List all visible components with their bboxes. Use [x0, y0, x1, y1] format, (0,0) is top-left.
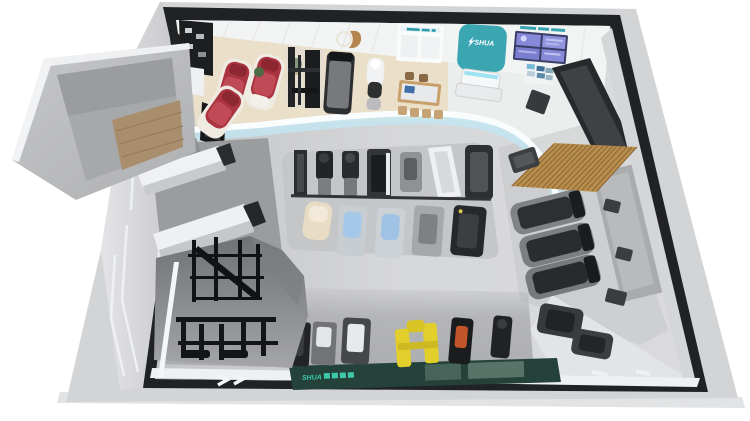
svg-text:SHUA: SHUA: [474, 39, 494, 47]
svg-text:SHUA: SHUA: [302, 374, 322, 382]
